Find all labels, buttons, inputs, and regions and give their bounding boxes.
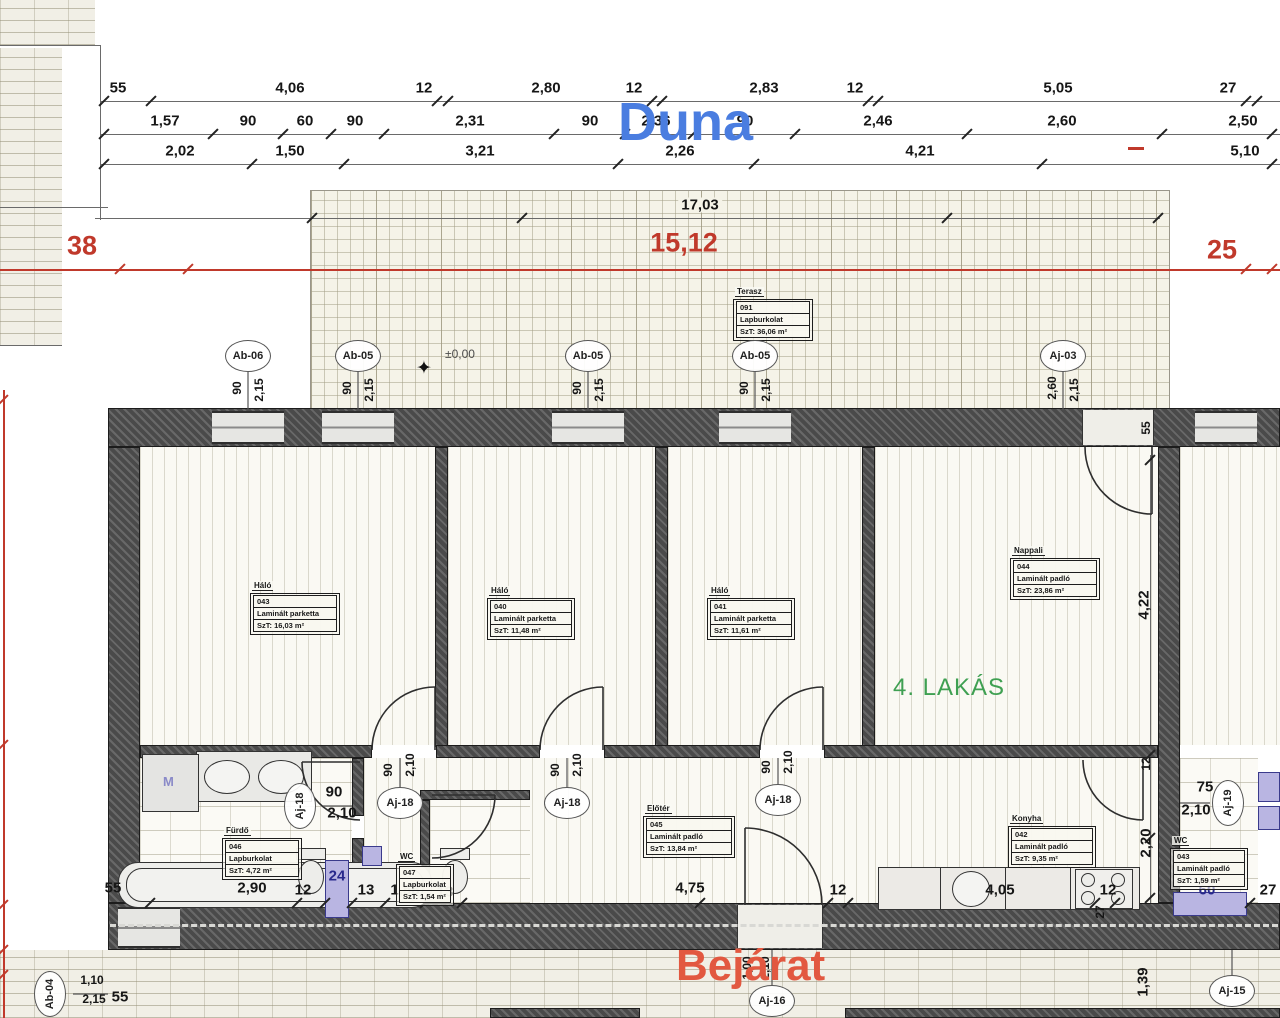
dim-text: 90 xyxy=(571,381,583,394)
marker-aj-18: Aj-18 xyxy=(755,784,801,816)
dim-text: 2,60 xyxy=(1046,376,1058,399)
room-box-title: WC xyxy=(398,852,415,862)
room-box-row: SzT: 11,61 m² xyxy=(710,624,792,637)
dim-text: 2,10 xyxy=(1181,803,1210,818)
room-box: Háló040Laminált parkettaSzT: 11,48 m² xyxy=(487,580,575,640)
dim-text: 4,75 xyxy=(675,881,704,896)
dim-text: 2,20 xyxy=(1139,828,1154,857)
dim-text: 75 xyxy=(1197,780,1214,795)
room-box-row: SzT: 1,54 m² xyxy=(399,890,451,903)
dim-text: 2,60 xyxy=(1047,114,1076,129)
room-box-row: SzT: 9,35 m² xyxy=(1011,852,1093,865)
dim-text: 12 xyxy=(416,81,433,96)
room-box: Fürdő046LapburkolatSzT: 4,72 m² xyxy=(222,820,302,880)
dim-text: 2,46 xyxy=(863,114,892,129)
dim-text: 2,02 xyxy=(165,144,194,159)
marker-aj-18: Aj-18 xyxy=(377,787,423,819)
dim-text: 4,06 xyxy=(275,81,304,96)
dim-text: 1,50 xyxy=(275,144,304,159)
dim-text: 4,22 xyxy=(1137,590,1152,619)
dim-text: 2,15 xyxy=(760,378,772,401)
dim-text: 2,15 xyxy=(82,993,105,1005)
marker-aj-18: Aj-18 xyxy=(544,787,590,819)
room-box: Nappali044Laminált padlóSzT: 23,86 m² xyxy=(1010,540,1100,600)
dim-text: 12 xyxy=(847,81,864,96)
dim-text: 1,57 xyxy=(150,114,179,129)
dim-text: 5,05 xyxy=(1043,81,1072,96)
duna-label: Duna xyxy=(618,95,753,149)
dim-text: 12 xyxy=(1100,883,1117,898)
door-arc xyxy=(372,687,435,750)
dim-text: 55 xyxy=(105,881,122,896)
dim-text: 2,15 xyxy=(593,378,605,401)
red-dim-line xyxy=(0,269,1280,271)
room-box-row: SzT: 4,72 m² xyxy=(225,864,299,877)
marker-ab-04: Ab-04 xyxy=(34,971,66,1017)
dim-text: 1,39 xyxy=(1136,967,1151,996)
room-box-row: SzT: 16,03 m² xyxy=(253,619,337,632)
dim-text: 12 xyxy=(1140,757,1152,770)
dim-text: 4,21 xyxy=(905,144,934,159)
room-box-title: Előtér xyxy=(645,804,672,814)
dim-text: 2,10 xyxy=(571,753,583,776)
dim-text: 90 xyxy=(341,381,353,394)
room-box-title: Háló xyxy=(489,586,510,596)
bejarat-label: Bejárat xyxy=(676,944,825,988)
dim-text: 27 xyxy=(1094,905,1106,918)
dim-text: 2,10 xyxy=(327,806,356,821)
level-label: ±0,00 xyxy=(445,348,475,360)
dim-text: 90 xyxy=(549,763,561,776)
room-box: Konyha042Laminált padlóSzT: 9,35 m² xyxy=(1008,808,1096,868)
dim-text: 55 xyxy=(1140,421,1152,434)
room-box-row: SzT: 13,84 m² xyxy=(646,842,732,855)
dim-text: 60 xyxy=(297,114,314,129)
dim-text: 1,10 xyxy=(80,974,103,986)
dim-text: 13 xyxy=(358,883,375,898)
room-box-row: SzT: 11,48 m² xyxy=(490,624,572,637)
dim-text: 55 xyxy=(110,81,127,96)
dim-text: 90 xyxy=(760,760,772,773)
dim-text: 2,15 xyxy=(253,378,265,401)
red-dash xyxy=(1128,147,1144,150)
red-dim-line-left xyxy=(3,390,5,1018)
dim-text: 2,10 xyxy=(782,750,794,773)
dim-text: 2,15 xyxy=(363,378,375,401)
room-box: Terasz091LapburkolatSzT: 36,06 m² xyxy=(733,281,813,341)
room-box-title: Háló xyxy=(709,586,730,596)
dim-text: 2,15 xyxy=(1068,378,1080,401)
dim-text: 17,03 xyxy=(678,198,722,213)
dim-text: 90 xyxy=(738,381,750,394)
room-box: Háló043Laminált parkettaSzT: 16,03 m² xyxy=(250,575,340,635)
dim-text: 5,10 xyxy=(1230,144,1259,159)
dim-text: 90 xyxy=(582,114,599,129)
room-box-title: Nappali xyxy=(1012,546,1045,556)
marker-ab-05: Ab-05 xyxy=(732,340,778,372)
dim-text: 12 xyxy=(295,883,312,898)
room-box-title: Terasz xyxy=(735,287,764,297)
room-box-row: SzT: 23,86 m² xyxy=(1013,584,1097,597)
marker-ab-05: Ab-05 xyxy=(335,340,381,372)
door-arc xyxy=(1085,447,1152,514)
room-box: WC043Laminált padlóSzT: 1,59 m² xyxy=(1170,830,1248,890)
room-box-row: SzT: 1,59 m² xyxy=(1173,874,1245,887)
door-arc xyxy=(760,687,823,750)
dim-text: 90 xyxy=(326,785,343,800)
marker-aj-19: Aj-19 xyxy=(1212,780,1244,826)
floorplan-canvas: ✦ ±0,00 M Duna Bejárat 4. LAKÁS 554,0612… xyxy=(0,0,1280,1018)
dim-text: 12 xyxy=(830,883,847,898)
room-box-title: WC xyxy=(1172,836,1189,846)
dim-text: 3,21 xyxy=(465,144,494,159)
dim-text: 90 xyxy=(240,114,257,129)
room-box-title: Fürdő xyxy=(224,826,251,836)
dim-text: 24 xyxy=(329,869,346,884)
room-box: Előtér045Laminált padlóSzT: 13,84 m² xyxy=(643,798,735,858)
dim-text: 2,83 xyxy=(749,81,778,96)
dim-text: 2,80 xyxy=(531,81,560,96)
door-arc xyxy=(745,828,822,905)
dim-text: 4,05 xyxy=(985,883,1014,898)
dim-text: 25 xyxy=(1207,237,1237,264)
level-marker-icon: ✦ xyxy=(416,357,432,380)
dim-text: 2,10 xyxy=(404,753,416,776)
dim-text: 90 xyxy=(382,763,394,776)
dim-text: 38 xyxy=(67,233,97,260)
dim-text: 90 xyxy=(231,381,243,394)
room-box: Háló041Laminált parkettaSzT: 11,61 m² xyxy=(707,580,795,640)
dim-text: 2,50 xyxy=(1228,114,1257,129)
room-box-title: Konyha xyxy=(1010,814,1043,824)
apartment-label: 4. LAKÁS xyxy=(893,676,1005,700)
marker-aj-15: Aj-15 xyxy=(1209,975,1255,1007)
door-arc xyxy=(540,687,603,750)
dim-text: 15,12 xyxy=(650,230,718,257)
dim-text: 27 xyxy=(1260,883,1277,898)
dim-text: 55 xyxy=(112,990,129,1005)
dim-text: 2,90 xyxy=(237,881,266,896)
marker-aj-18: Aj-18 xyxy=(284,783,316,829)
marker-aj-03: Aj-03 xyxy=(1040,340,1086,372)
marker-ab-06: Ab-06 xyxy=(225,340,271,372)
dim-text: 2,31 xyxy=(455,114,484,129)
dim-text: 27 xyxy=(1220,81,1237,96)
room-box-row: SzT: 36,06 m² xyxy=(736,325,810,338)
dim-text: 90 xyxy=(347,114,364,129)
room-box-title: Háló xyxy=(252,581,273,591)
marker-ab-05: Ab-05 xyxy=(565,340,611,372)
room-box: WC047LapburkolatSzT: 1,54 m² xyxy=(396,846,454,906)
